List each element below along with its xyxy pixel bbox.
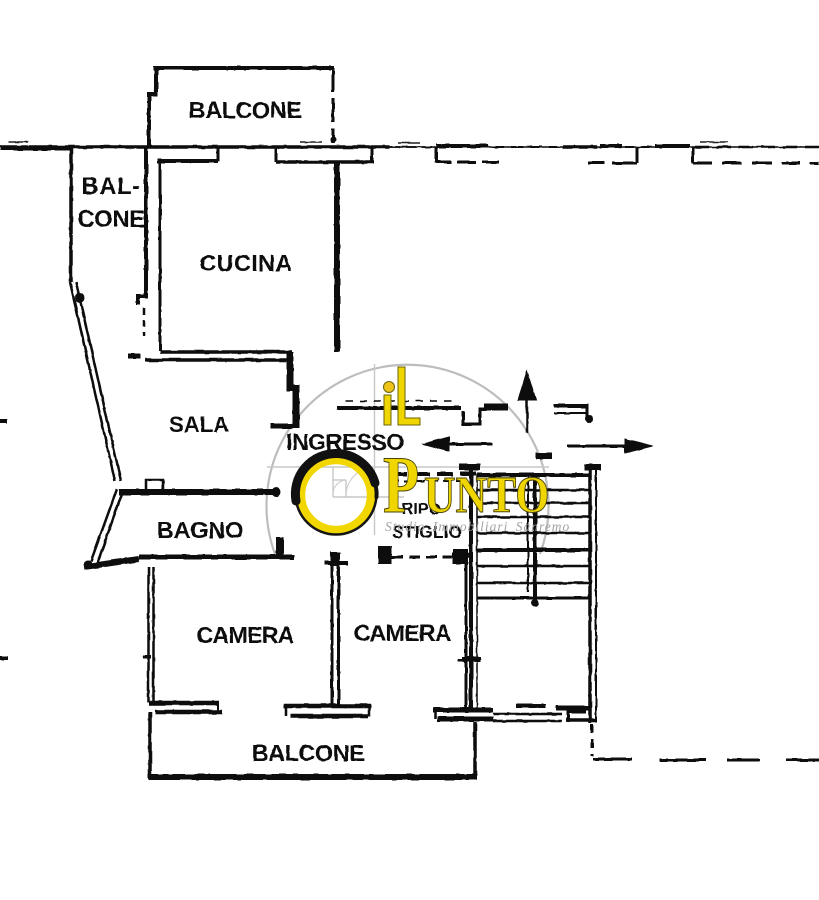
svg-text:Studio Immobiliari Sanremo: Studio Immobiliari Sanremo — [385, 519, 570, 534]
svg-text:CAMERA: CAMERA — [353, 620, 451, 646]
svg-text:P: P — [383, 440, 419, 531]
svg-text:BAGNO: BAGNO — [157, 517, 243, 543]
svg-text:CUCINA: CUCINA — [199, 250, 292, 276]
svg-text:BALCONE: BALCONE — [189, 97, 302, 123]
svg-text:SALA: SALA — [169, 412, 229, 437]
svg-text:BALCONE: BALCONE — [252, 740, 365, 766]
svg-text:CAMERA: CAMERA — [196, 622, 294, 648]
svg-text:UNTO: UNTO — [424, 467, 549, 524]
svg-text:CONE: CONE — [77, 206, 145, 233]
svg-text:BAL-: BAL- — [81, 173, 140, 200]
